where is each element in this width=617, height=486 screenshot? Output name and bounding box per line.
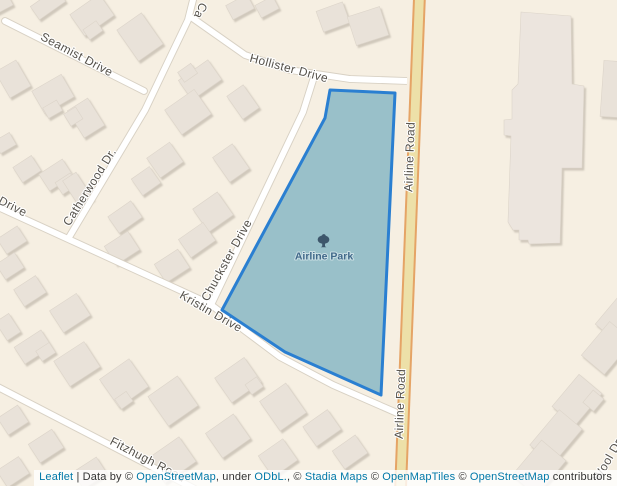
svg-text:Airline Road: Airline Road bbox=[401, 122, 417, 193]
svg-text:Airline Park: Airline Park bbox=[295, 251, 354, 263]
svg-text:Airline Road: Airline Road bbox=[392, 369, 408, 440]
